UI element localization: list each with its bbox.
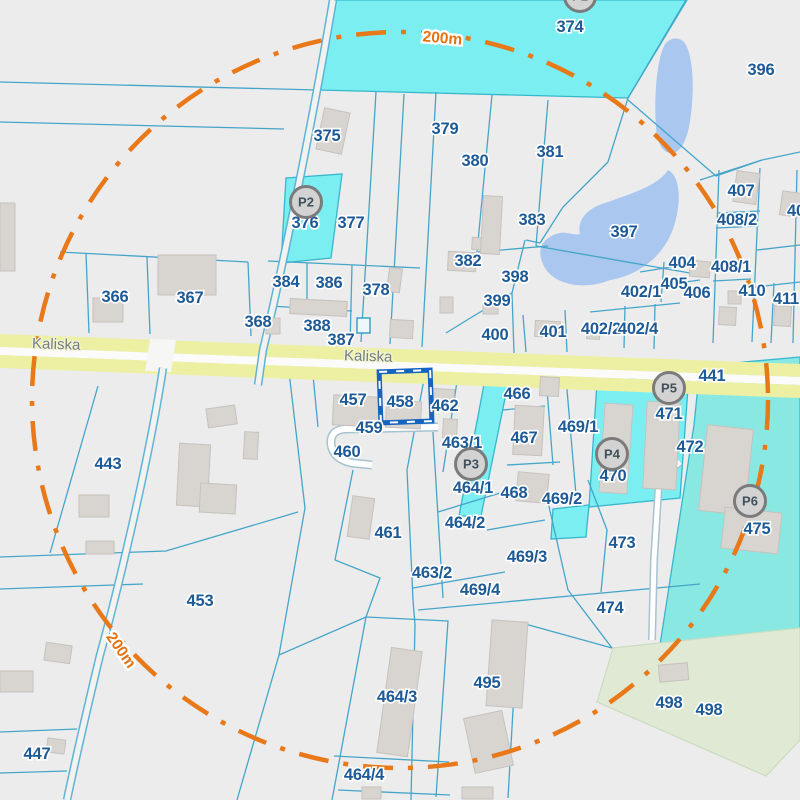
parcel-label-377[interactable]: 377: [338, 214, 365, 232]
parcel-label-375[interactable]: 375: [314, 127, 341, 145]
parcel-label-366[interactable]: 366: [102, 288, 129, 306]
parcel-label-378[interactable]: 378: [363, 281, 390, 299]
parcel-label-402-4[interactable]: 402/4: [618, 320, 659, 338]
parcel-label-459[interactable]: 459: [356, 419, 383, 437]
parcel-label-458[interactable]: 458: [387, 393, 414, 411]
parcel-label-386[interactable]: 386: [316, 274, 343, 292]
parcel-label-381[interactable]: 381: [537, 143, 564, 161]
parcel-label-408-1[interactable]: 408/1: [711, 258, 751, 276]
marker-P4[interactable]: P4: [597, 439, 628, 470]
parcel-label-472[interactable]: 472: [677, 438, 704, 456]
parcel-label-461[interactable]: 461: [375, 524, 402, 542]
parcel-label-40[interactable]: 40: [787, 202, 800, 220]
parcel-label-384[interactable]: 384: [273, 273, 301, 291]
parcel-label-464-3[interactable]: 464/3: [377, 688, 417, 706]
parcel-label-460[interactable]: 460: [334, 443, 361, 461]
parcel-label-441[interactable]: 441: [699, 367, 726, 385]
marker-label: P3: [463, 457, 479, 472]
marker-label: P5: [661, 381, 677, 396]
parcel-label-447[interactable]: 447: [24, 745, 51, 763]
parcel-label-453[interactable]: 453: [187, 592, 214, 610]
parcel-label-474[interactable]: 474: [597, 599, 625, 617]
parcel-label-407[interactable]: 407: [728, 182, 755, 200]
parcel-label-464-1[interactable]: 464/1: [453, 479, 493, 497]
parcel-label-475[interactable]: 475: [744, 520, 771, 538]
parcel-label-464-2[interactable]: 464/2: [445, 514, 485, 532]
parcel-label-368[interactable]: 368: [245, 313, 272, 331]
marker-label: P1: [572, 0, 588, 4]
parcel-label-464-4[interactable]: 464/4: [344, 766, 385, 784]
parcel-label-457[interactable]: 457: [340, 391, 367, 409]
parcel-label-462[interactable]: 462: [432, 397, 459, 415]
parcel-label-380[interactable]: 380: [462, 152, 489, 170]
marker-P3[interactable]: P3: [456, 449, 487, 480]
parcel-label-404[interactable]: 404: [669, 254, 697, 272]
parcel-label-469-3[interactable]: 469/3: [507, 548, 547, 566]
parcel-label-401[interactable]: 401: [540, 323, 567, 341]
parcel-label-367[interactable]: 367: [177, 289, 204, 307]
parcel-label-471[interactable]: 471: [656, 405, 683, 423]
road-name-label: Kaliska: [344, 347, 394, 366]
parcel-label-406[interactable]: 406: [684, 284, 711, 302]
parcel-label-408-2[interactable]: 408/2: [717, 211, 757, 229]
parcel-label-379[interactable]: 379: [432, 120, 459, 138]
parcel-label-402-2[interactable]: 402/2: [581, 320, 621, 338]
parcel-label-498[interactable]: 498: [696, 701, 723, 719]
parcel-label-399[interactable]: 399: [484, 292, 511, 310]
parcel-label-410[interactable]: 410: [739, 282, 766, 300]
parcel-label-495[interactable]: 495: [474, 674, 501, 692]
parcel-label-382[interactable]: 382: [455, 252, 482, 270]
parcel-label-469-1[interactable]: 469/1: [558, 418, 598, 436]
marker-label: P4: [604, 447, 621, 462]
parcel-label-469-4[interactable]: 469/4: [460, 581, 501, 599]
road-name-label: Kaliska: [32, 335, 82, 354]
parcel-label-374[interactable]: 374: [557, 18, 585, 36]
parcel-label-498[interactable]: 498: [656, 694, 683, 712]
marker-P5[interactable]: P5: [654, 373, 685, 404]
cadastral-map[interactable]: KaliskaKaliska 3743963753793803813763773…: [0, 0, 800, 800]
parcel-label-383[interactable]: 383: [519, 211, 546, 229]
parcel-label-443[interactable]: 443: [95, 455, 122, 473]
parcel-label-396[interactable]: 396: [748, 61, 775, 79]
marker-P2[interactable]: P2: [291, 187, 322, 218]
parcel-label-467[interactable]: 467: [511, 429, 538, 447]
parcel-label-402-1[interactable]: 402/1: [621, 283, 661, 301]
parcel-label-469-2[interactable]: 469/2: [542, 490, 582, 508]
road-crossing-gap: [145, 339, 176, 372]
parcel-label-388[interactable]: 388: [304, 317, 331, 335]
parcel-label-400[interactable]: 400: [482, 326, 509, 344]
parcel-label-398[interactable]: 398: [502, 268, 529, 286]
parcel-label-411[interactable]: 411: [773, 290, 799, 308]
parcel-label-468[interactable]: 468: [501, 484, 528, 502]
marker-label: P2: [298, 195, 314, 210]
parcel-label-473[interactable]: 473: [609, 534, 636, 552]
small-outlined-structure: [357, 318, 370, 333]
parcel-label-463-2[interactable]: 463/2: [412, 564, 452, 582]
parcel-label-397[interactable]: 397: [611, 223, 638, 241]
cyan-parcel-470-tail[interactable]: [551, 505, 589, 539]
parcel-label-387[interactable]: 387: [328, 331, 355, 349]
marker-label: P6: [742, 494, 758, 509]
marker-P6[interactable]: P6: [735, 486, 766, 517]
parcel-label-466[interactable]: 466: [504, 385, 531, 403]
cyan-parcel-374[interactable]: [318, 0, 687, 98]
map-canvas: KaliskaKaliska 3743963753793803813763773…: [0, 0, 800, 800]
ring-distance-label: 200m: [422, 28, 463, 48]
